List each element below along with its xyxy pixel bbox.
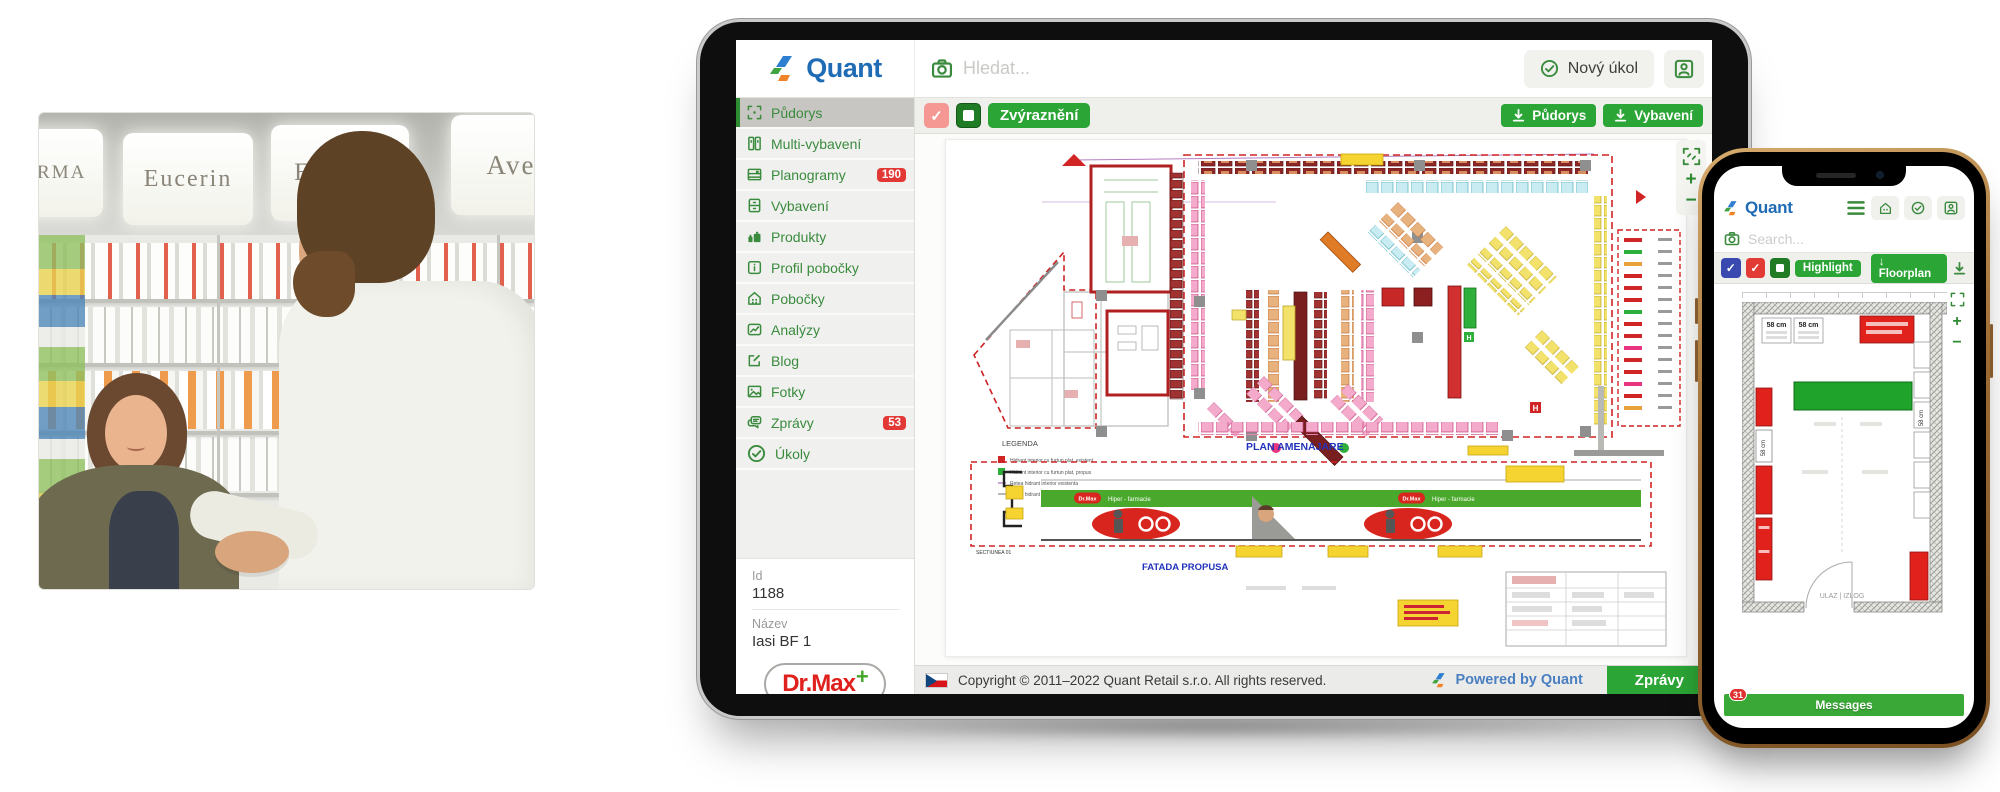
chart-icon xyxy=(747,322,762,337)
download-floorplan-button[interactable]: Půdorys xyxy=(1501,104,1596,127)
czech-flag-icon[interactable] xyxy=(925,673,948,688)
dimension-ruler xyxy=(1742,292,1947,298)
svg-text:SECTIUNEA 01: SECTIUNEA 01 xyxy=(976,550,1012,556)
new-task-button[interactable]: Nový úkol xyxy=(1524,50,1654,88)
tasks-button[interactable] xyxy=(1904,196,1932,220)
name-label: Název xyxy=(752,617,900,631)
sidebar-item-profil-pobocky[interactable]: Profil pobočky xyxy=(736,253,914,284)
search-placeholder: Hledat... xyxy=(963,58,1030,79)
cabinet-icon xyxy=(747,198,762,213)
planogram-icon xyxy=(747,167,762,182)
search-bar[interactable]: Hledat... xyxy=(914,40,1524,97)
svg-text:FATADA PROPUSA: FATADA PROPUSA xyxy=(1142,562,1229,573)
plan-toolbar: ✓ Zvýraznění Půdorys Vybavení xyxy=(915,98,1712,134)
sidebar-item-ukoly[interactable]: Úkoly xyxy=(736,439,914,470)
quant-logo-icon xyxy=(1723,200,1740,217)
phone-bezel: Quant Search... ✓ ✓ Highlight xyxy=(1702,152,1986,744)
new-task-label: Nový úkol xyxy=(1568,60,1638,78)
pharmacy-photo: DERMA Eucerin Eucerin Ave xyxy=(38,112,535,590)
branch-details: Id 1188 Název Iasi BF 1 Dr.Max + xyxy=(736,558,914,694)
grid-icon xyxy=(747,136,762,151)
svg-text:Hidrant interior cu furtun pla: Hidrant interior cu furtun plat, existen… xyxy=(1010,458,1094,464)
quant-logo[interactable]: Quant xyxy=(736,40,914,97)
sidebar-item-fotky[interactable]: Fotky xyxy=(736,377,914,408)
search-placeholder: Search... xyxy=(1748,231,1804,247)
man-beard xyxy=(293,251,355,317)
svg-text:Hidrant interior cu furtun pla: Hidrant interior cu furtun plat, propus xyxy=(1010,470,1092,476)
tablet-device: Quant Hledat... Nový úkol xyxy=(700,22,1748,716)
highlight-check-toggle[interactable]: ✓ xyxy=(924,103,949,128)
check-circle-icon xyxy=(747,444,766,463)
svg-text:Dr.Max: Dr.Max xyxy=(1078,497,1097,503)
products-icon xyxy=(747,229,762,244)
copyright-text: Copyright © 2011–2022 Quant Retail s.r.o… xyxy=(958,673,1326,688)
item-badge: 190 xyxy=(877,168,906,182)
check-circle-icon xyxy=(1540,59,1559,78)
sidebar-item-analyzy[interactable]: Analýzy xyxy=(736,315,914,346)
phone-search-bar[interactable]: Search... xyxy=(1714,226,1974,253)
svg-text:H: H xyxy=(1466,335,1471,342)
svg-text:58 cm: 58 cm xyxy=(1761,440,1767,456)
sidebar-item-vybaveni[interactable]: Vybavení xyxy=(736,191,914,222)
fill-mode-toggle[interactable] xyxy=(956,103,981,128)
plan-canvas[interactable]: H xyxy=(915,134,1712,665)
zoom-in-button[interactable]: + xyxy=(1952,316,1961,328)
sidebar: Půdorys Multi-vybavení Planogramy 190 xyxy=(736,98,914,694)
sign-derma: DERMA xyxy=(38,129,103,217)
store-icon xyxy=(1879,202,1892,215)
tablet-header: Quant Hledat... Nový úkol xyxy=(736,40,1712,98)
sidebar-item-pobocky[interactable]: Pobočky xyxy=(736,284,914,315)
fill-mode-toggle[interactable] xyxy=(1770,258,1790,278)
phone-floor-plan[interactable]: 58 cm 58 cm 58 cm xyxy=(1742,302,1947,622)
messages-button[interactable]: Zprávy xyxy=(1607,666,1712,694)
fullscreen-icon[interactable] xyxy=(1950,292,1965,307)
svg-text:LEGENDA: LEGENDA xyxy=(1002,439,1038,448)
quant-logo-icon xyxy=(768,54,798,84)
tablet-shadow xyxy=(770,714,1650,740)
phone-device: Quant Search... ✓ ✓ Highlight xyxy=(1698,148,1990,748)
select-all-toggle[interactable]: ✓ xyxy=(1721,258,1741,278)
highlight-button[interactable]: Zvýraznění xyxy=(988,103,1090,128)
sidebar-item-multi-vybaveni[interactable]: Multi-vybavení xyxy=(736,129,914,160)
profile-button[interactable] xyxy=(1664,50,1704,88)
svg-text:58 cm: 58 cm xyxy=(1799,322,1819,329)
svg-text:PLAN AMENAJARE: PLAN AMENAJARE xyxy=(1246,441,1344,453)
floorplan-icon xyxy=(747,105,762,120)
svg-text:58 cm: 58 cm xyxy=(1919,410,1925,426)
zoom-out-button[interactable]: − xyxy=(1952,337,1961,349)
sidebar-item-pudorys[interactable]: Půdorys xyxy=(736,98,914,129)
phone-toolbar: ✓ ✓ Highlight ↓ Floorplan xyxy=(1714,253,1974,284)
floor-plan-drawing: H xyxy=(946,140,1686,656)
phone-zoom-controls: + − xyxy=(1945,292,1969,349)
drmax-logo: Dr.Max + xyxy=(764,663,886,694)
handshake xyxy=(215,531,289,573)
download-floorplan-button[interactable]: ↓ Floorplan xyxy=(1871,254,1947,283)
sign-avene: Ave xyxy=(451,115,535,215)
home-button[interactable] xyxy=(1871,196,1899,220)
camera-search-icon xyxy=(1724,231,1740,247)
zoom-in-button[interactable]: + xyxy=(1685,173,1696,187)
person-icon xyxy=(1674,59,1694,79)
download-icon[interactable] xyxy=(1952,261,1967,276)
woman-smile xyxy=(127,443,145,451)
menu-icon[interactable] xyxy=(1846,198,1866,218)
phone-header: Quant xyxy=(1714,190,1974,226)
svg-text:58 cm: 58 cm xyxy=(1767,322,1787,329)
sidebar-filler xyxy=(736,470,914,558)
photo-icon xyxy=(747,384,762,399)
edit-icon xyxy=(747,353,762,368)
store-icon xyxy=(747,291,762,306)
powered-by[interactable]: Powered by Quant xyxy=(1431,672,1582,689)
floor-plan-sheet[interactable]: H xyxy=(945,139,1687,657)
item-badge: 53 xyxy=(883,416,906,430)
woman-face xyxy=(105,395,167,471)
svg-text:Hiper - farmacie: Hiper - farmacie xyxy=(1432,497,1475,503)
id-label: Id xyxy=(752,569,900,583)
man-shirt xyxy=(279,281,535,590)
name-value: Iasi BF 1 xyxy=(752,633,900,657)
svg-text:ULAZ | IZLOG: ULAZ | IZLOG xyxy=(1820,593,1865,600)
download-icon xyxy=(1613,108,1628,123)
tablet-footer: Copyright © 2011–2022 Quant Retail s.r.o… xyxy=(915,665,1712,694)
svg-text:H: H xyxy=(1533,404,1539,413)
sidebar-item-blog[interactable]: Blog xyxy=(736,346,914,377)
sign-eucerin-1: Eucerin xyxy=(123,133,253,225)
sidebar-item-planogramy[interactable]: Planogramy 190 xyxy=(736,160,914,191)
zoom-out-button[interactable]: − xyxy=(1685,194,1696,208)
sidebar-item-produkty[interactable]: Produkty xyxy=(736,222,914,253)
quant-logo-text: Quant xyxy=(1745,198,1793,218)
messages-badge: 31 xyxy=(1729,688,1747,701)
info-icon xyxy=(747,260,762,275)
woman-shirt xyxy=(109,491,179,590)
phone-screen: Quant Search... ✓ ✓ Highlight xyxy=(1714,166,1974,728)
highlight-button[interactable]: Highlight xyxy=(1795,260,1861,277)
download-icon xyxy=(1511,108,1526,123)
chat-icon xyxy=(747,415,762,430)
check-circle-icon xyxy=(1911,201,1925,215)
camera-search-icon xyxy=(931,58,953,80)
phone-notch xyxy=(1782,166,1906,186)
stage: DERMA Eucerin Eucerin Ave Quant Hledat xyxy=(0,0,2000,792)
person-icon xyxy=(1944,201,1958,215)
profile-button[interactable] xyxy=(1937,196,1965,220)
quant-logo-text: Quant xyxy=(806,53,882,84)
id-value: 1188 xyxy=(752,585,900,610)
highlight-check-toggle[interactable]: ✓ xyxy=(1746,258,1766,278)
download-equipment-button[interactable]: Vybavení xyxy=(1603,104,1703,127)
sidebar-item-zpravy[interactable]: Zprávy 53 xyxy=(736,408,914,439)
phone-messages-button[interactable]: 31 Messages xyxy=(1724,694,1964,716)
drmax-plus: + xyxy=(856,664,869,690)
tablet-screen: Quant Hledat... Nový úkol xyxy=(736,40,1712,694)
svg-text:Hiper - farmacie: Hiper - farmacie xyxy=(1108,497,1151,503)
fullscreen-icon[interactable] xyxy=(1682,147,1701,166)
quant-logo-icon xyxy=(1431,672,1448,689)
svg-text:Dr.Max: Dr.Max xyxy=(1402,497,1421,503)
